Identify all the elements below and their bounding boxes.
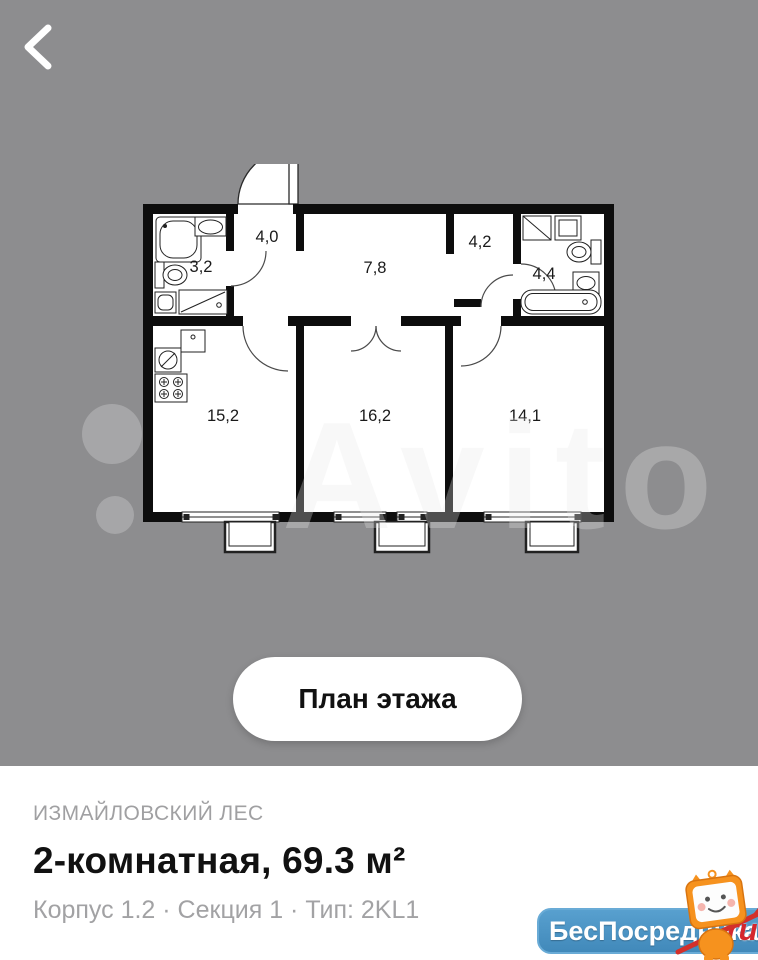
room-label-bathroom: 4,4 [533,265,556,283]
floor-plan-image: 3,2 4,0 7,8 4,2 4,4 15,2 16,2 14,1 [143,164,614,558]
complex-name: ИЗМАЙЛОВСКИЙ ЛЕС [33,802,758,826]
watermark-logo-dot [96,496,134,534]
entrance-door [238,164,298,204]
room-label-corridor: 7,8 [364,259,387,277]
floor-plan-button[interactable]: План этажа [233,657,522,741]
room-label-bedroom-1: 16,2 [359,407,391,425]
room-label-bedroom-2: 14,1 [509,407,541,425]
listing-photo-screen: 3,2 4,0 7,8 4,2 4,4 15,2 16,2 14,1 Avito… [0,0,758,960]
room-label-bathroom-small: 3,2 [190,258,213,276]
listing-title: 2-комнатная, 69.3 м² [33,840,758,882]
room-label-wardrobe: 4,2 [469,233,492,251]
back-button[interactable] [14,14,70,76]
back-chevron-icon [14,14,70,76]
plan-body: 3,2 4,0 7,8 4,2 4,4 15,2 16,2 14,1 [143,164,614,552]
room-label-kitchen-living: 15,2 [207,407,239,425]
floor-plan-button-label: План этажа [298,683,456,714]
room-label-entry-hall: 4,0 [256,228,279,246]
mascot-icon [672,868,758,960]
balconies [225,522,578,552]
photo-viewer[interactable]: 3,2 4,0 7,8 4,2 4,4 15,2 16,2 14,1 Avito… [0,0,758,766]
watermark-logo-dot [82,404,142,464]
windows [182,512,581,522]
